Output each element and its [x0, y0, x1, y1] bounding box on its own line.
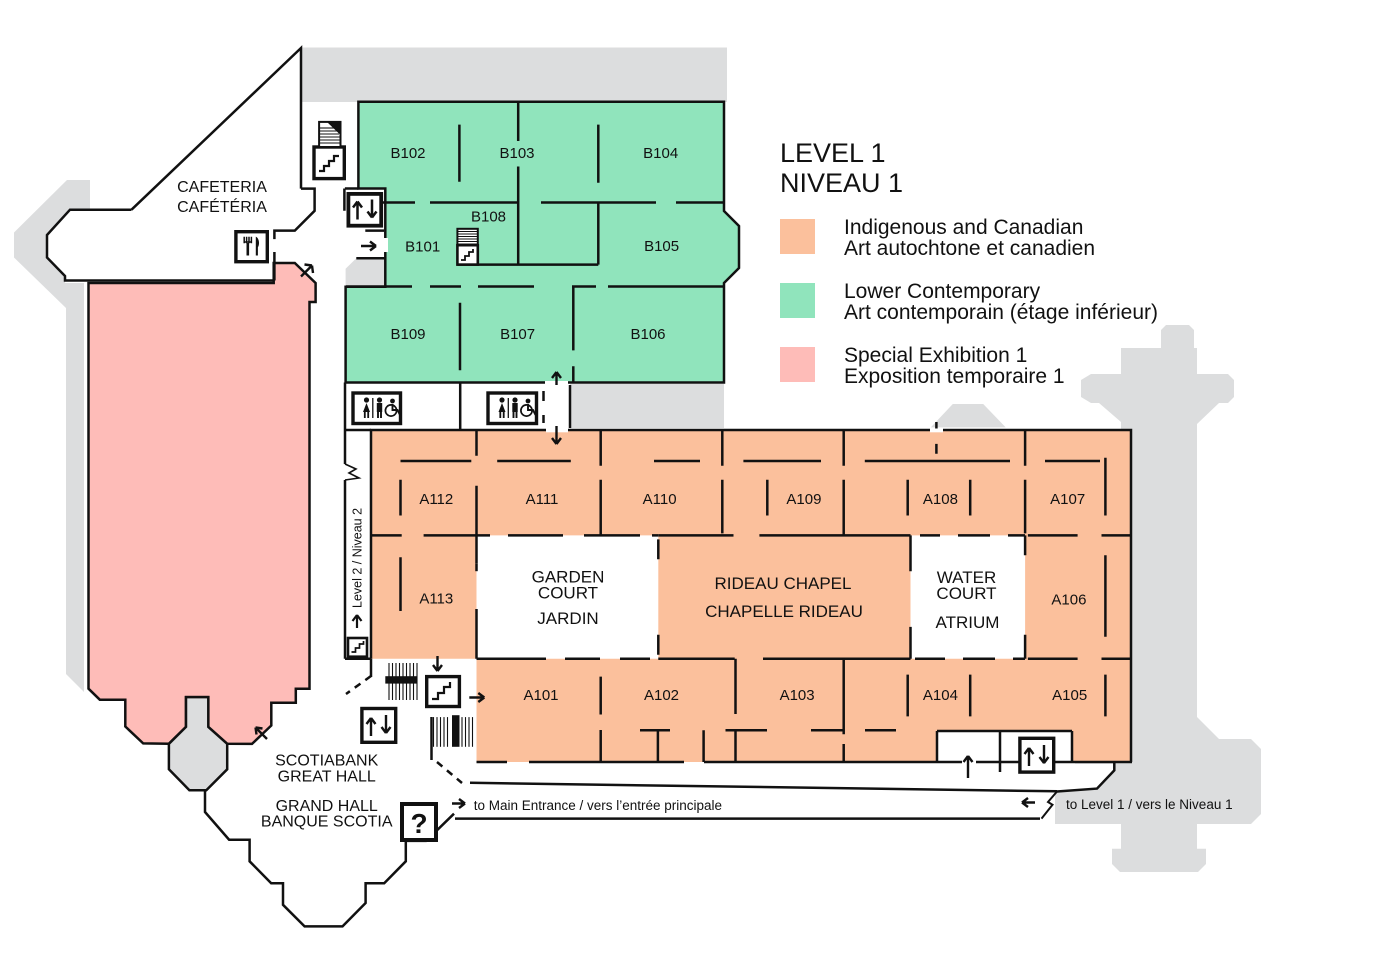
svg-text:B108: B108	[471, 209, 506, 226]
svg-text:Level 2 / Niveau 2: Level 2 / Niveau 2	[351, 508, 365, 608]
svg-text:SCOTIABANK: SCOTIABANK	[275, 753, 378, 770]
svg-text:A112: A112	[419, 491, 453, 508]
svg-text:Special Exhibition 1: Special Exhibition 1	[844, 344, 1027, 367]
svg-text:RIDEAU CHAPEL: RIDEAU CHAPEL	[715, 574, 852, 593]
svg-text:A113: A113	[419, 591, 453, 608]
svg-text:A111: A111	[526, 491, 559, 508]
svg-text:A109: A109	[786, 491, 821, 508]
svg-text:Art contemporain (étage inféri: Art contemporain (étage inférieur)	[844, 301, 1158, 324]
svg-text:B106: B106	[630, 326, 665, 343]
svg-text:GREAT HALL: GREAT HALL	[278, 769, 376, 786]
svg-text:B103: B103	[499, 145, 534, 162]
svg-text:CHAPELLE RIDEAU: CHAPELLE RIDEAU	[705, 602, 863, 621]
svg-text:BANQUE SCOTIA: BANQUE SCOTIA	[261, 814, 393, 831]
svg-text:B105: B105	[644, 238, 679, 255]
svg-text:A106: A106	[1051, 592, 1086, 609]
svg-text:A102: A102	[644, 687, 679, 704]
svg-text:LEVEL 1: LEVEL 1	[780, 138, 886, 168]
svg-text:A108: A108	[923, 491, 958, 508]
svg-text:A103: A103	[780, 687, 815, 704]
svg-text:A110: A110	[643, 491, 677, 508]
svg-text:B101: B101	[405, 239, 440, 256]
svg-text:A105: A105	[1052, 687, 1087, 704]
svg-text:GRAND HALL: GRAND HALL	[276, 798, 378, 815]
svg-text:A107: A107	[1050, 491, 1085, 508]
svg-text:B102: B102	[390, 145, 425, 162]
svg-text:ATRIUM: ATRIUM	[936, 613, 1000, 632]
svg-text:B104: B104	[643, 145, 678, 162]
svg-text:to Level 1 / vers le Niveau 1: to Level 1 / vers le Niveau 1	[1066, 797, 1233, 812]
svg-text:COURT: COURT	[936, 584, 996, 603]
svg-text:Lower Contemporary: Lower Contemporary	[844, 280, 1041, 303]
svg-text:B107: B107	[500, 326, 535, 343]
svg-text:COURT: COURT	[538, 584, 598, 603]
svg-text:CAFETERIA: CAFETERIA	[177, 179, 267, 196]
svg-text:CAFÉTÉRIA: CAFÉTÉRIA	[177, 197, 267, 216]
svg-text:A104: A104	[923, 687, 958, 704]
svg-text:JARDIN: JARDIN	[537, 609, 598, 628]
svg-text:Indigenous and Canadian: Indigenous and Canadian	[844, 216, 1083, 239]
svg-text:to Main Entrance / vers l’entr: to Main Entrance / vers l’entrée princip…	[474, 798, 722, 813]
svg-text:Art autochtone et canadien: Art autochtone et canadien	[844, 237, 1095, 260]
svg-text:?: ?	[410, 808, 427, 839]
svg-text:B109: B109	[390, 326, 425, 343]
svg-text:NIVEAU 1: NIVEAU 1	[780, 168, 903, 198]
svg-text:A101: A101	[523, 687, 558, 704]
svg-text:Exposition temporaire 1: Exposition temporaire 1	[844, 365, 1065, 388]
